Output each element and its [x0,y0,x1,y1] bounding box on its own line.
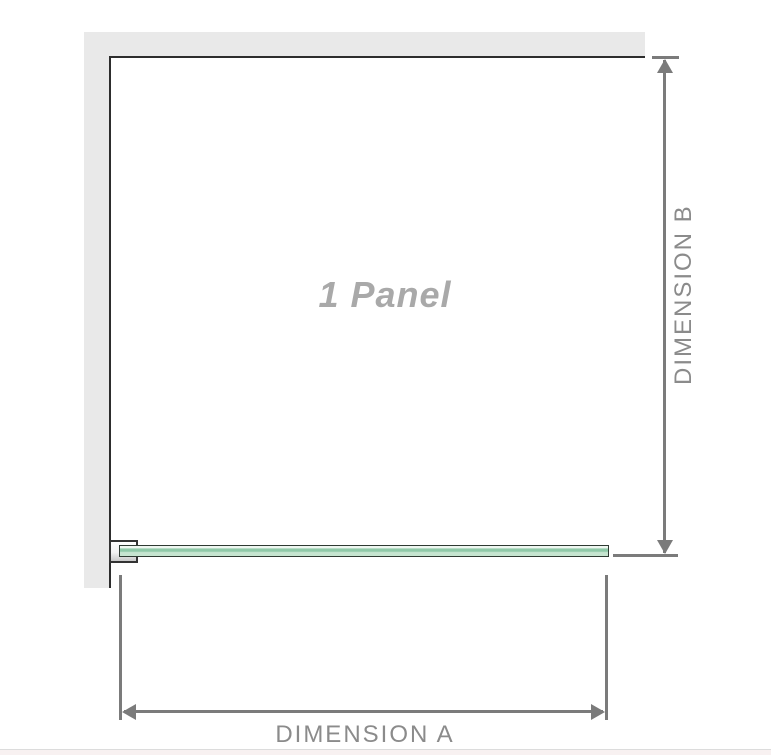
panel-count-label: 1 Panel [275,274,495,316]
arrowhead-down-icon [657,540,673,554]
wall-segment-top [84,32,645,57]
dimension-a-extension-line-right [605,575,608,720]
dimension-b-label: DIMENSION B [670,235,698,385]
panel-outline-top-line [110,56,645,58]
arrowhead-left-icon [122,704,136,720]
panel-outline-left-line [109,56,111,588]
dimension-b-line [663,60,666,553]
bottom-edge-strip [0,749,771,755]
dimension-a-label: DIMENSION A [240,721,490,749]
diagram-canvas: 1 Panel DIMENSION B DIMENSION A [0,0,771,755]
dimension-a-line [124,710,603,713]
wall-segment-left [84,32,110,588]
arrowhead-up-icon [657,59,673,73]
arrowhead-right-icon [591,704,605,720]
dimension-a-extension-line-left [119,575,122,720]
glass-panel [119,545,609,557]
dimension-b-bottom-cap [613,554,678,557]
